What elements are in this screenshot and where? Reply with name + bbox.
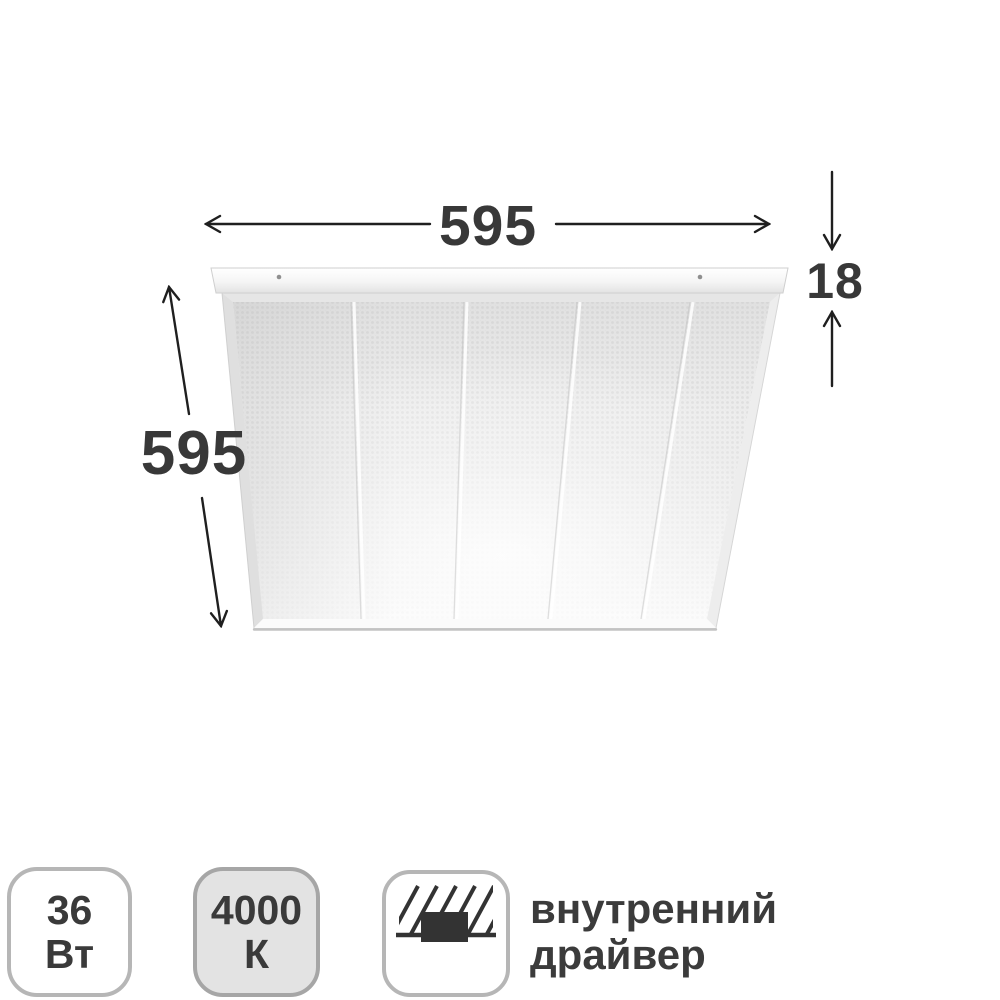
dimension-thickness-label: 18	[800, 256, 870, 306]
badge-power-value: 36	[47, 888, 93, 932]
driver-label-line1: внутренний	[530, 886, 777, 932]
dimension-width-label: 595	[398, 198, 578, 255]
dimension-depth-label: 595	[128, 423, 260, 485]
badge-color-temperature-unit: К	[244, 932, 269, 976]
led-panel-illustration	[0, 0, 1000, 1000]
driver-label: внутренний драйвер	[530, 886, 777, 978]
badge-color-temperature-value: 4000	[211, 888, 302, 932]
badge-power-unit: Вт	[45, 932, 94, 976]
screw-icon	[277, 275, 282, 280]
screw-icon	[698, 275, 703, 280]
driver-label-line2: драйвер	[530, 932, 777, 978]
product-dimension-diagram: 595 595 18 36 Вт 4000 К внутренни	[0, 0, 1000, 1000]
panel-body	[222, 293, 780, 630]
panel-top-bar	[211, 268, 788, 293]
badge-color-temperature: 4000 К	[193, 867, 320, 997]
recessed-driver-icon	[396, 884, 496, 946]
badge-driver	[382, 870, 510, 997]
badge-power: 36 Вт	[7, 867, 132, 997]
